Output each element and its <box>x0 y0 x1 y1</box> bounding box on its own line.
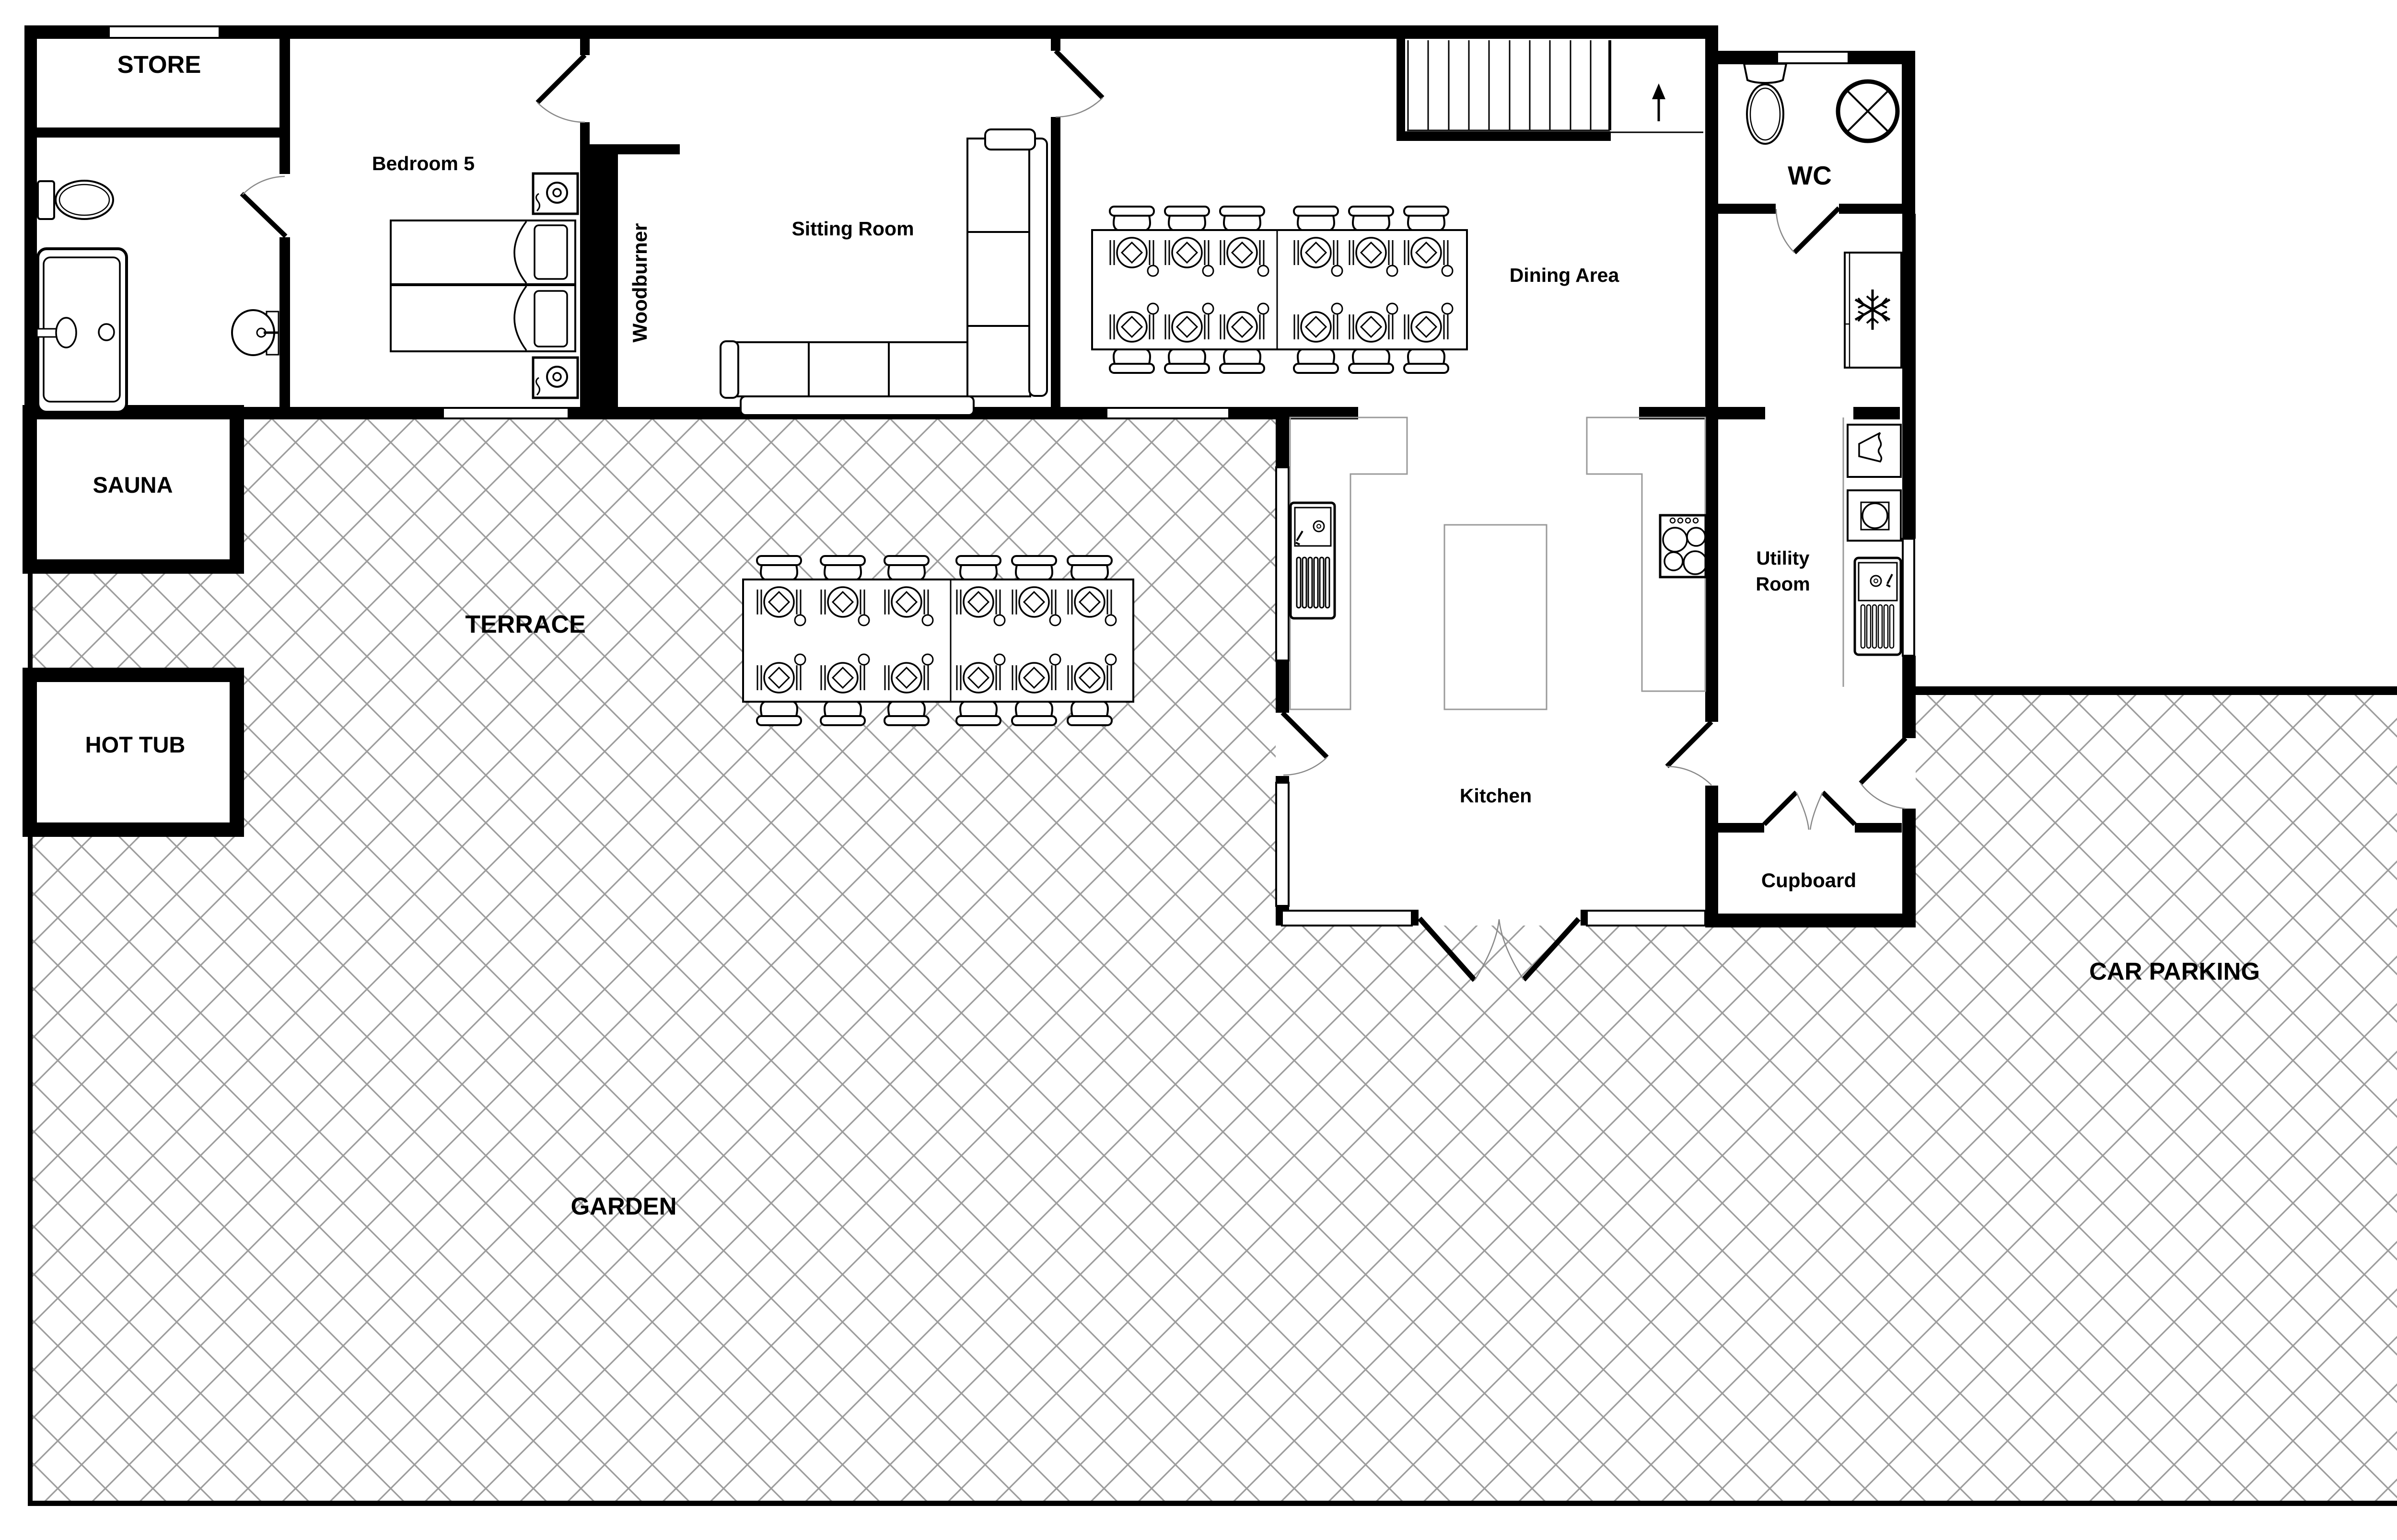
svg-text:CAR PARKING: CAR PARKING <box>2089 958 2260 985</box>
svg-text:Room: Room <box>1756 574 1810 595</box>
svg-text:Bedroom 5: Bedroom 5 <box>372 152 475 174</box>
svg-text:Kitchen: Kitchen <box>1460 785 1532 807</box>
svg-text:TERRACE: TERRACE <box>465 611 585 638</box>
svg-text:Woodburner: Woodburner <box>628 223 651 343</box>
svg-text:Cupboard: Cupboard <box>1761 869 1856 892</box>
svg-text:HOT TUB: HOT TUB <box>85 732 186 757</box>
svg-text:STORE: STORE <box>117 51 201 78</box>
svg-text:WC: WC <box>1788 161 1832 190</box>
svg-text:GARDEN: GARDEN <box>570 1193 676 1220</box>
svg-text:SAUNA: SAUNA <box>93 472 173 498</box>
svg-text:Sitting Room: Sitting Room <box>791 218 914 240</box>
svg-text:Utility: Utility <box>1756 548 1810 569</box>
svg-text:Dining Area: Dining Area <box>1510 264 1620 286</box>
